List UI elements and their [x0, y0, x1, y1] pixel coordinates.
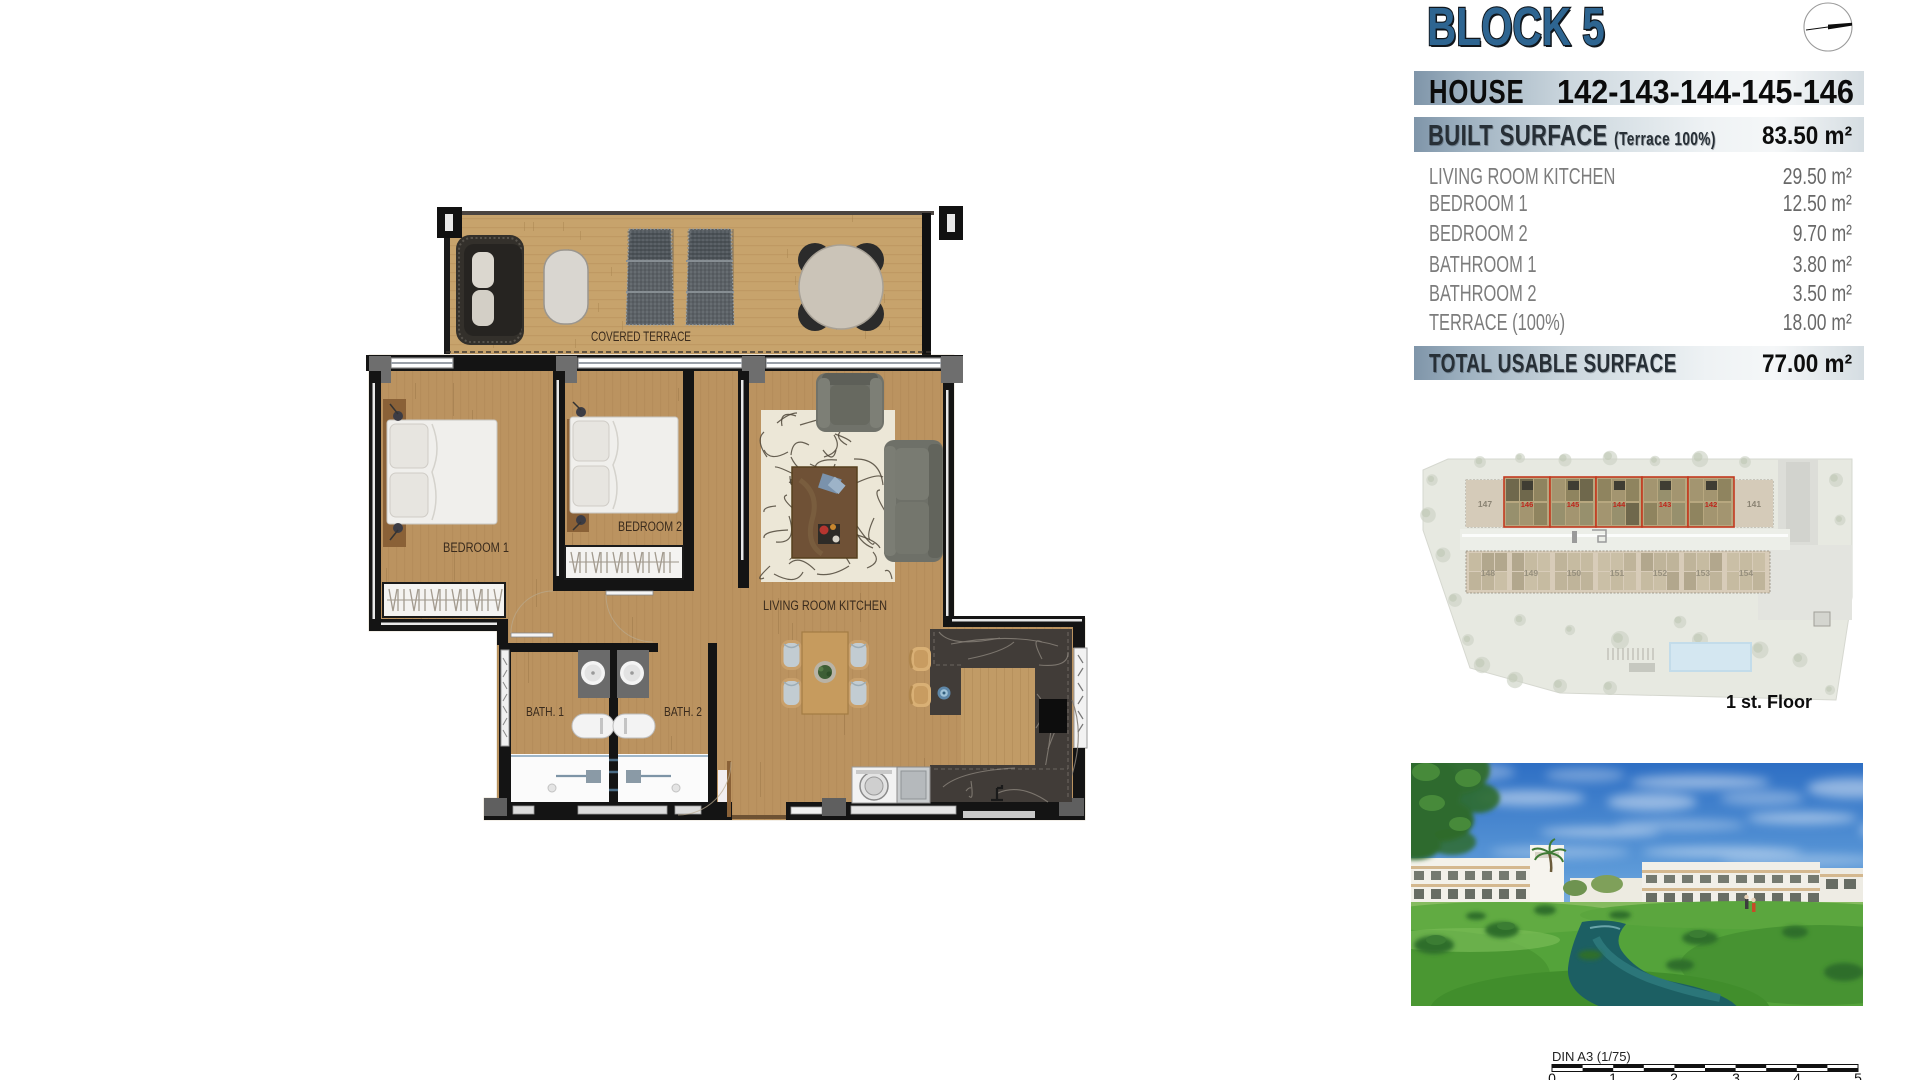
svg-text:BATH. 1: BATH. 1	[526, 704, 564, 719]
svg-text:147: 147	[1478, 499, 1492, 509]
svg-text:0: 0	[1548, 1070, 1556, 1080]
svg-text:152: 152	[1653, 568, 1667, 578]
svg-text:150: 150	[1567, 568, 1581, 578]
svg-text:COVERED TERRACE: COVERED TERRACE	[591, 328, 691, 344]
svg-text:BLOCK 5: BLOCK 5	[1427, 0, 1605, 57]
svg-text:154: 154	[1739, 568, 1753, 578]
svg-text:153: 153	[1696, 568, 1710, 578]
svg-text:145: 145	[1567, 500, 1580, 509]
svg-text:5: 5	[1854, 1070, 1862, 1080]
svg-text:144: 144	[1613, 500, 1626, 509]
svg-text:151: 151	[1610, 568, 1624, 578]
svg-text:BATH. 2: BATH. 2	[664, 704, 702, 719]
svg-text:143: 143	[1659, 500, 1672, 509]
svg-text:LIVING ROOM KITCHEN: LIVING ROOM KITCHEN	[763, 598, 887, 613]
svg-text:BEDROOM 1: BEDROOM 1	[443, 540, 509, 555]
svg-text:4: 4	[1793, 1070, 1801, 1080]
svg-text:3: 3	[1732, 1070, 1740, 1080]
svg-text:148: 148	[1481, 568, 1495, 578]
svg-text:141: 141	[1747, 499, 1761, 509]
svg-text:149: 149	[1524, 568, 1538, 578]
svg-text:1: 1	[1609, 1070, 1617, 1080]
svg-text:146: 146	[1521, 500, 1534, 509]
svg-text:2: 2	[1670, 1070, 1678, 1080]
svg-text:BEDROOM 2: BEDROOM 2	[618, 519, 682, 534]
svg-text:142: 142	[1705, 500, 1718, 509]
